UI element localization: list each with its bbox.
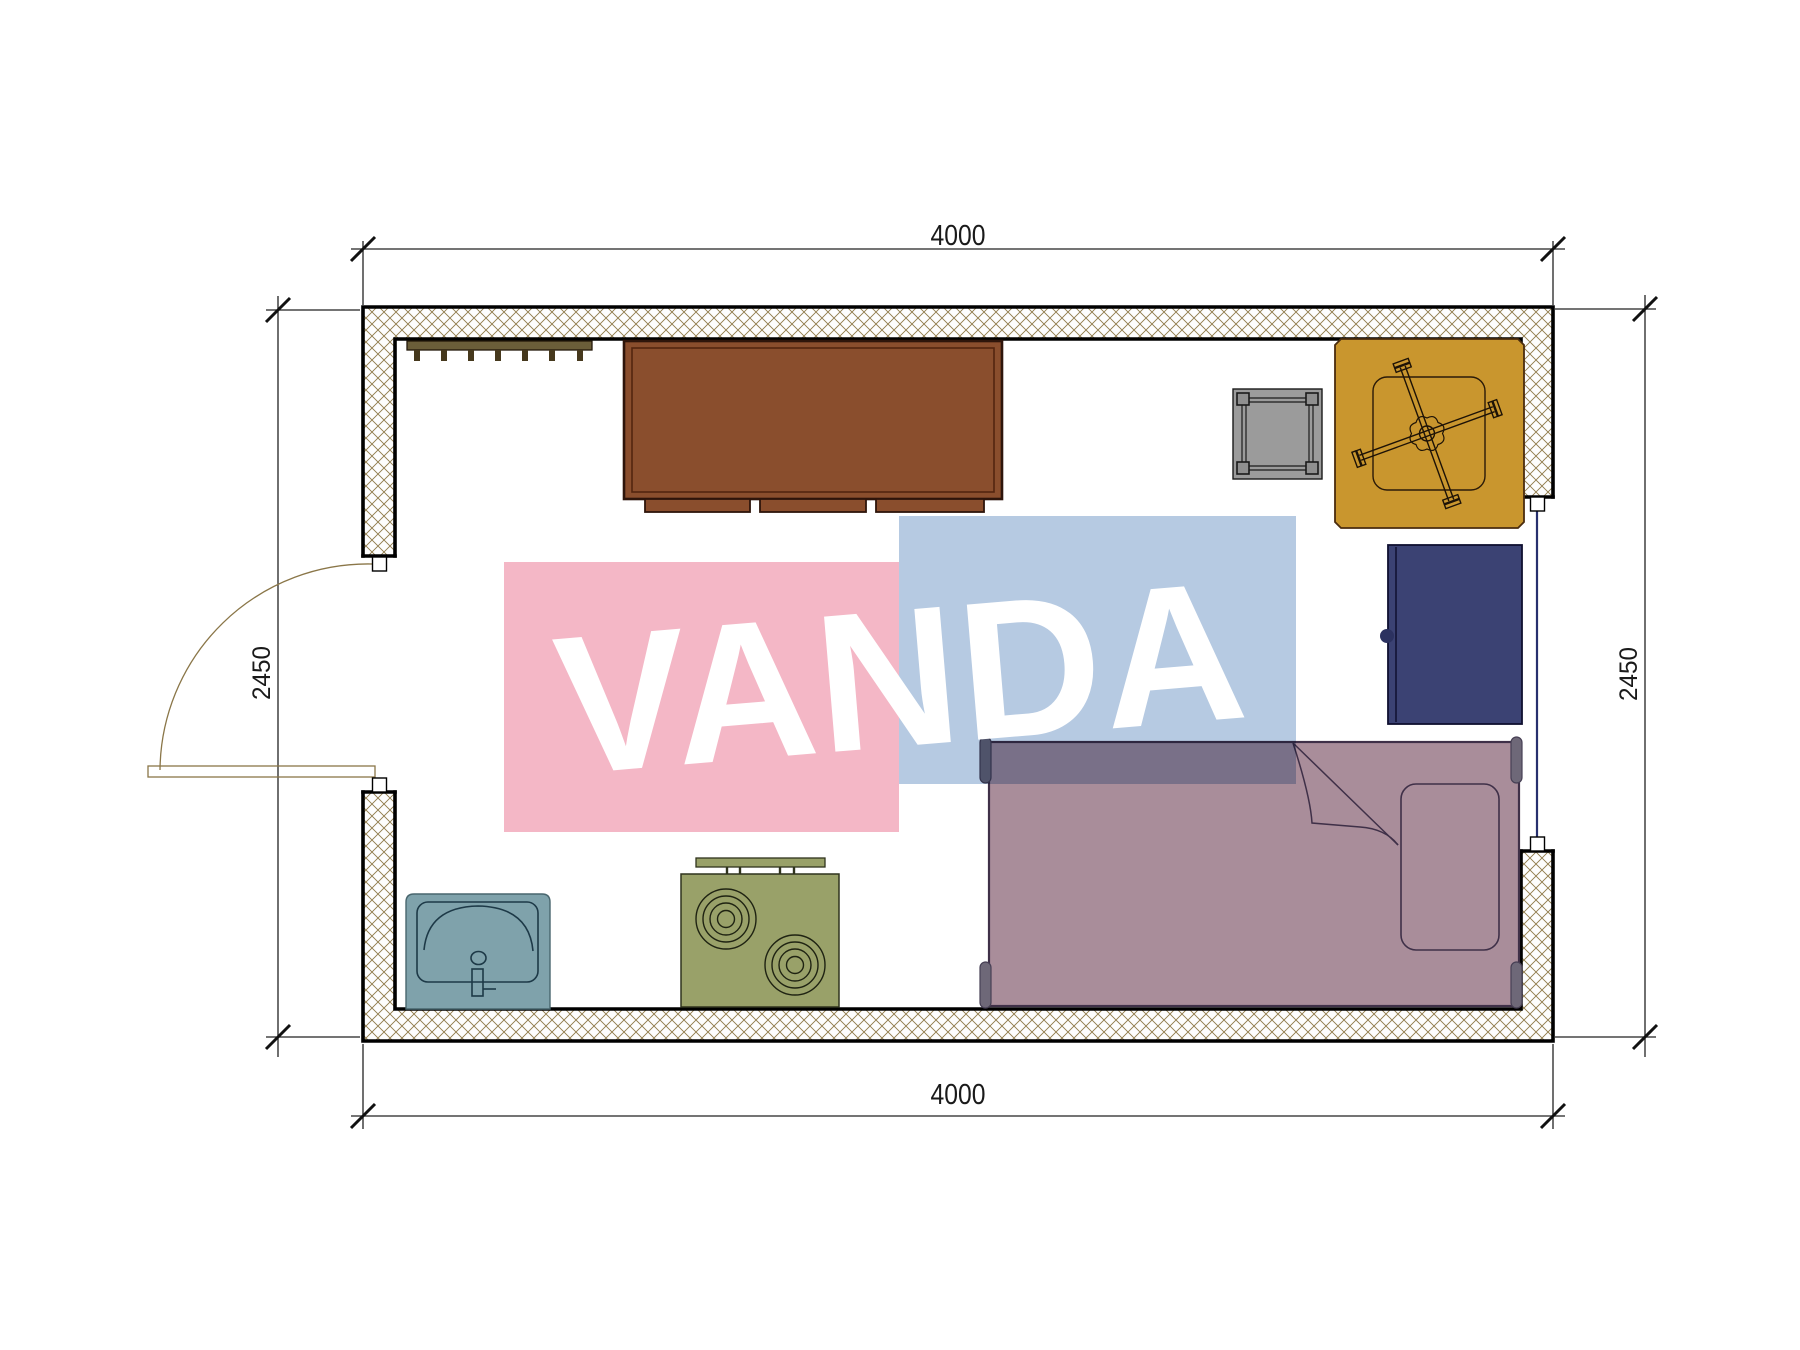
svg-text:2450: 2450 [1615,647,1643,701]
svg-text:4000: 4000 [931,220,986,252]
svg-text:4000: 4000 [931,1079,986,1111]
svg-text:2450: 2450 [248,646,276,700]
